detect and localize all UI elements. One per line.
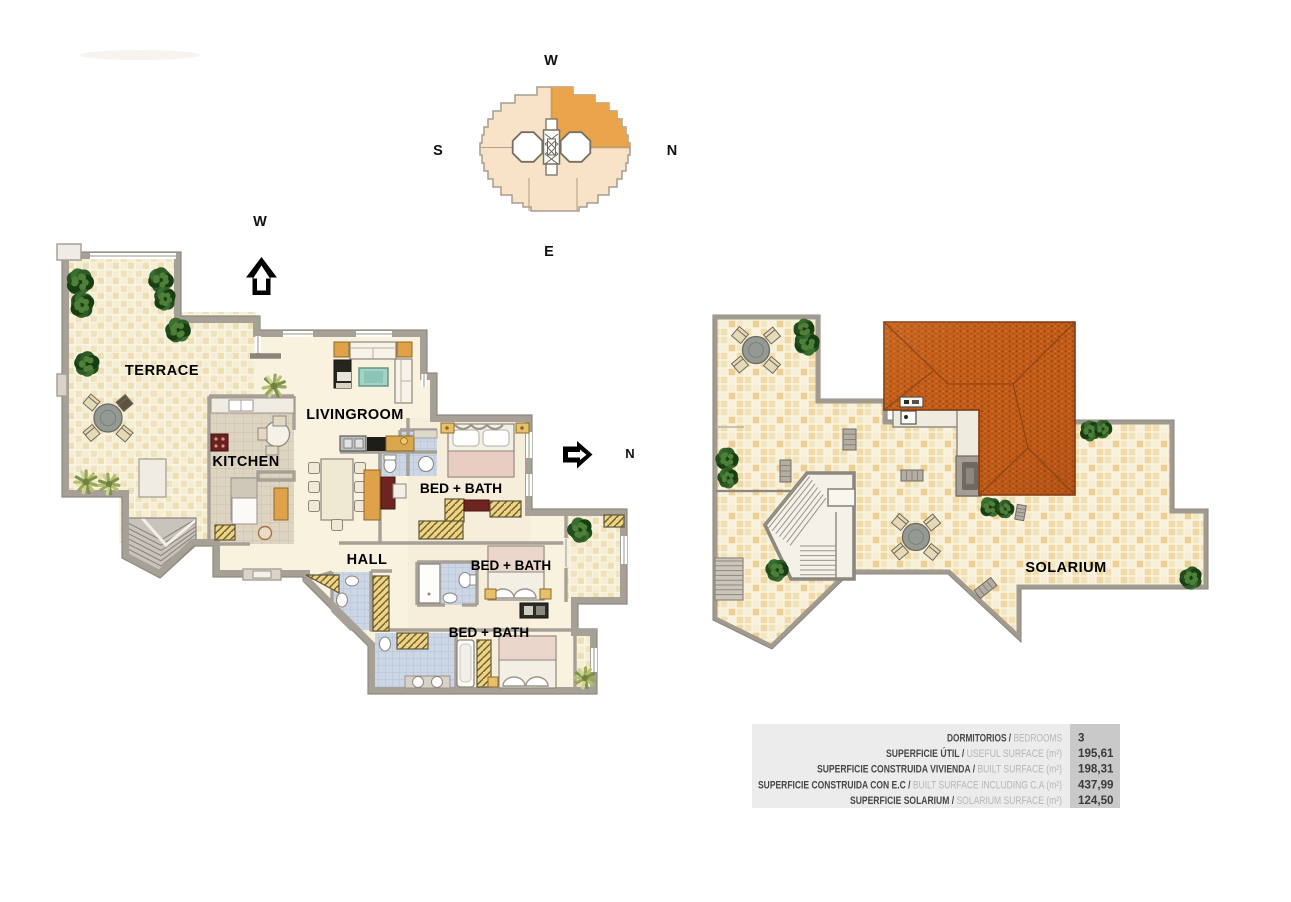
svg-text:SOLARIUM: SOLARIUM [1025, 560, 1106, 576]
svg-text:KITCHEN: KITCHEN [212, 454, 279, 470]
svg-text:E: E [544, 244, 554, 260]
svg-text:BED + BATH: BED + BATH [420, 481, 502, 496]
svg-text:HALL: HALL [347, 552, 388, 568]
svg-text:195,61: 195,61 [1078, 747, 1114, 760]
svg-text:W: W [544, 53, 558, 69]
svg-text:N: N [667, 143, 677, 159]
svg-text:3: 3 [1078, 732, 1085, 745]
svg-text:LIVINGROOM: LIVINGROOM [306, 407, 403, 423]
svg-text:124,50: 124,50 [1078, 794, 1113, 807]
svg-text:BED + BATH: BED + BATH [471, 558, 551, 573]
svg-text:SUPERFICIE ÚTIL / USEFUL SURFA: SUPERFICIE ÚTIL / USEFUL SURFACE (m²) [886, 747, 1062, 760]
svg-text:N: N [625, 446, 634, 461]
svg-text:W: W [253, 214, 267, 230]
svg-text:DORMITORIOS / BEDROOMS: DORMITORIOS / BEDROOMS [947, 733, 1062, 745]
svg-text:437,99: 437,99 [1078, 778, 1114, 791]
svg-text:TERRACE: TERRACE [125, 363, 199, 379]
svg-text:198,31: 198,31 [1078, 763, 1114, 776]
svg-text:BED + BATH: BED + BATH [449, 625, 529, 640]
svg-text:S: S [433, 143, 443, 159]
svg-text:SUPERFICIE CONSTRUIDA VIVIENDA: SUPERFICIE CONSTRUIDA VIVIENDA / BUILT S… [817, 764, 1062, 776]
svg-text:SUPERFICIE CONSTRUIDA CON E.C: SUPERFICIE CONSTRUIDA CON E.C / BUILT SU… [758, 779, 1062, 791]
svg-text:SUPERFICIE SOLARIUM / SOLARIUM: SUPERFICIE SOLARIUM / SOLARIUM SURFACE (… [850, 795, 1062, 807]
